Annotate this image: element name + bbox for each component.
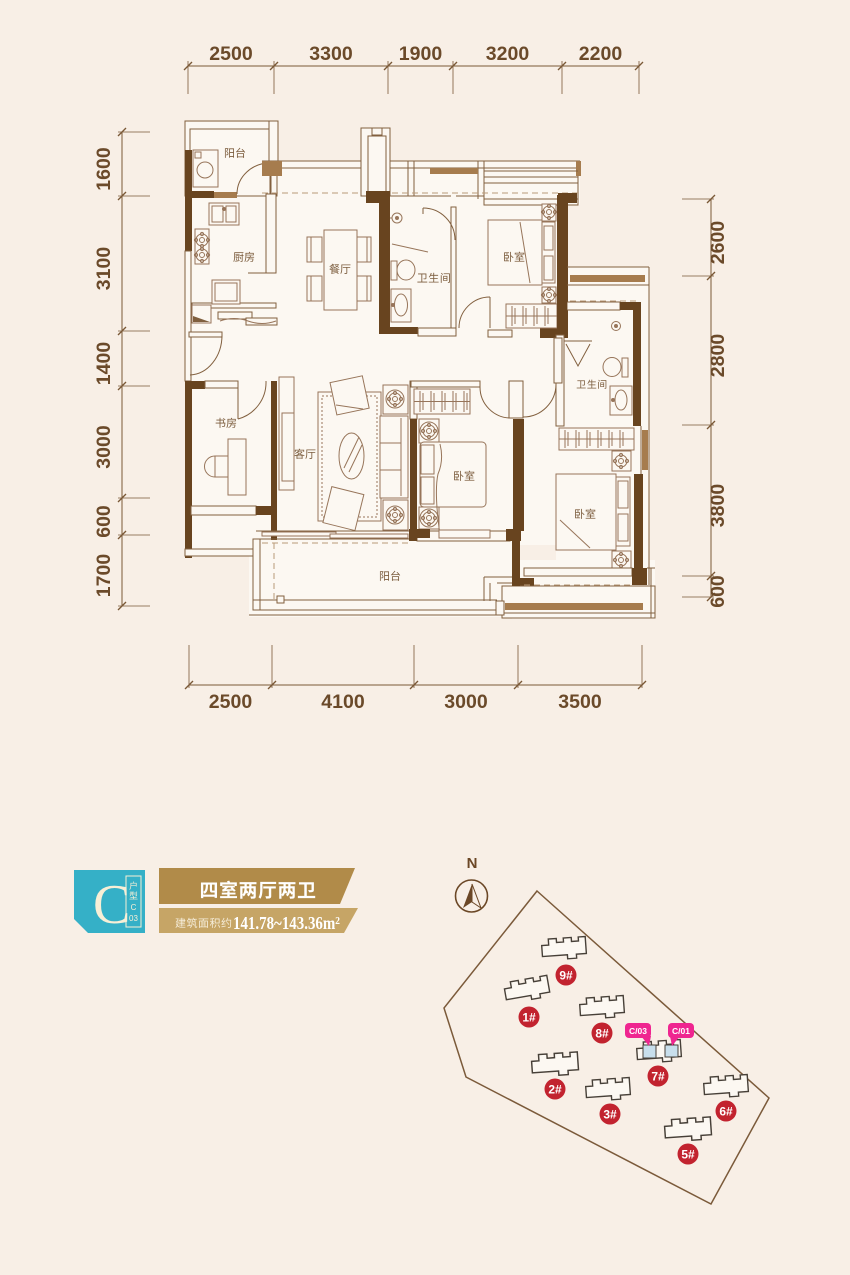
svg-text:600: 600: [707, 575, 729, 608]
svg-text:7#: 7#: [651, 1070, 665, 1084]
svg-text:C: C: [93, 874, 130, 936]
svg-text:141.78~143.36m2: 141.78~143.36m2: [233, 913, 340, 933]
svg-text:9#: 9#: [559, 969, 573, 983]
svg-text:3000: 3000: [444, 691, 488, 713]
svg-text:6#: 6#: [719, 1105, 733, 1119]
svg-text:2600: 2600: [707, 221, 729, 265]
svg-text:2800: 2800: [707, 334, 729, 378]
svg-text:3#: 3#: [603, 1108, 617, 1122]
svg-text:4100: 4100: [321, 691, 365, 713]
svg-text:1600: 1600: [93, 147, 115, 191]
svg-text:3500: 3500: [558, 691, 602, 713]
svg-text:1#: 1#: [522, 1011, 536, 1025]
svg-text:2500: 2500: [209, 43, 253, 65]
svg-text:1900: 1900: [399, 43, 443, 65]
svg-text:C/03: C/03: [629, 1026, 647, 1036]
svg-text:600: 600: [93, 505, 115, 538]
svg-text:03: 03: [129, 914, 138, 923]
svg-text:2#: 2#: [548, 1083, 562, 1097]
svg-text:3300: 3300: [309, 43, 353, 65]
svg-text:8#: 8#: [595, 1027, 609, 1041]
svg-text:3100: 3100: [93, 247, 115, 291]
svg-text:5#: 5#: [681, 1148, 695, 1162]
svg-text:3000: 3000: [93, 425, 115, 469]
svg-text:3200: 3200: [486, 43, 530, 65]
svg-text:N: N: [467, 855, 478, 872]
svg-text:C/01: C/01: [672, 1026, 690, 1036]
svg-text:1400: 1400: [93, 342, 115, 386]
svg-text:2500: 2500: [209, 691, 253, 713]
svg-text:C: C: [131, 903, 137, 912]
svg-text:1700: 1700: [93, 554, 115, 598]
svg-text:3800: 3800: [707, 484, 729, 528]
svg-text:2200: 2200: [579, 43, 623, 65]
